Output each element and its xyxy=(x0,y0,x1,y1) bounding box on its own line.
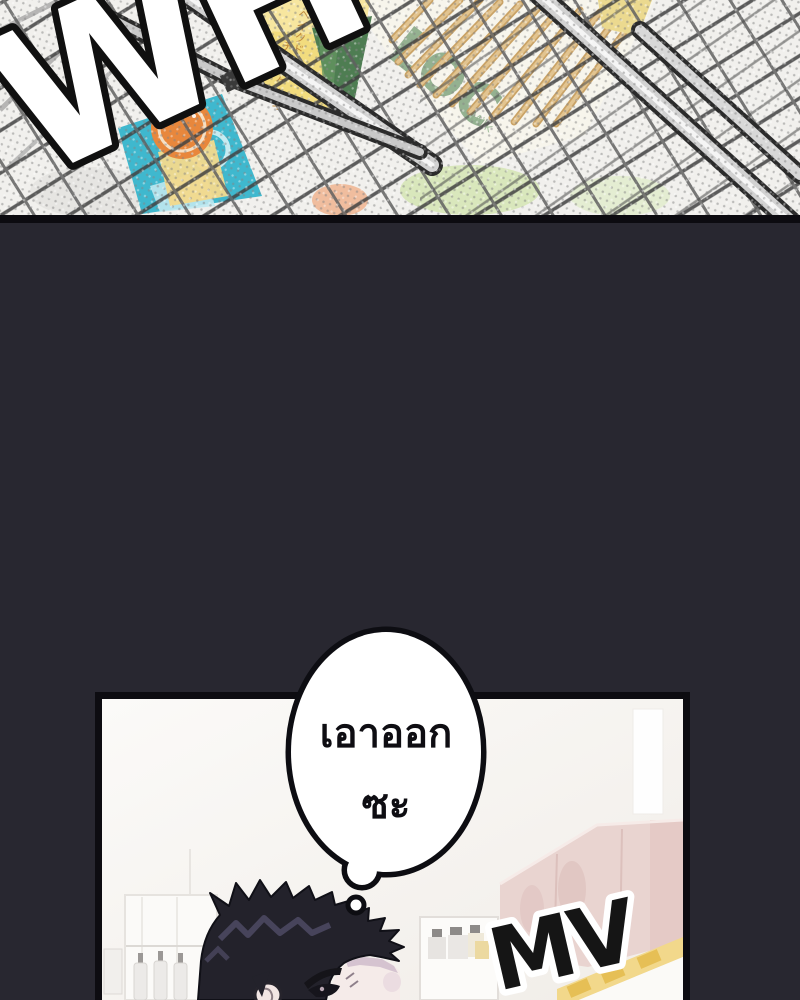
basket-art: LOC Milk xyxy=(0,0,800,215)
top-panel-basket-closeup: LOC Milk xyxy=(0,0,800,223)
comic-page: LOC Milk xyxy=(0,0,800,1000)
bubble-text-line2: ซะ xyxy=(362,782,411,828)
eye-glint xyxy=(320,987,324,991)
shelf-bottles xyxy=(134,951,187,1000)
bubble-tail-circle xyxy=(348,897,364,913)
white-pillar xyxy=(633,709,663,814)
thought-bubble: เอาออก ซะ xyxy=(280,622,500,922)
bubble-text-line1: เอาออก xyxy=(320,711,452,757)
